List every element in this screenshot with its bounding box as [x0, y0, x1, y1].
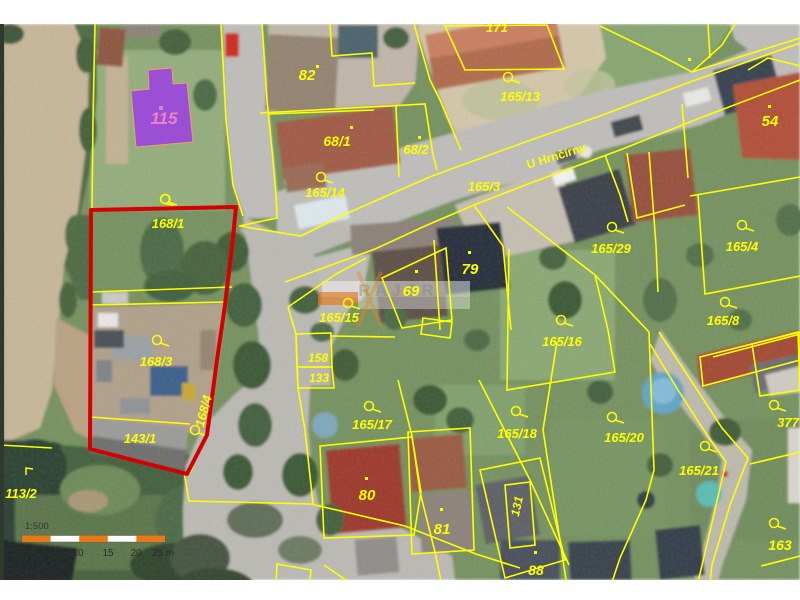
svg-text:79: 79: [462, 261, 479, 278]
svg-text:163: 163: [768, 537, 792, 553]
svg-text:165/4: 165/4: [726, 239, 759, 254]
svg-text:10: 10: [72, 548, 84, 559]
svg-text:115: 115: [150, 109, 178, 128]
svg-text:68/1: 68/1: [323, 133, 350, 149]
svg-text:165/29: 165/29: [591, 241, 632, 256]
svg-text:165/3: 165/3: [468, 179, 501, 194]
svg-text:377: 377: [777, 415, 799, 430]
svg-text:168/3: 168/3: [140, 354, 173, 369]
svg-text:113/2: 113/2: [5, 486, 37, 501]
svg-text:81: 81: [434, 521, 451, 538]
svg-text:165/13: 165/13: [500, 89, 541, 104]
svg-text:165/18: 165/18: [497, 426, 538, 441]
svg-text:69: 69: [403, 283, 420, 300]
svg-text:0: 0: [19, 548, 25, 559]
svg-text:165/17: 165/17: [352, 417, 393, 432]
svg-text:82: 82: [299, 67, 316, 84]
svg-text:15: 15: [102, 548, 114, 559]
svg-text:165/21: 165/21: [679, 463, 719, 478]
svg-text:165/14: 165/14: [305, 185, 346, 200]
svg-text:25 m: 25 m: [152, 548, 174, 559]
svg-text:20: 20: [130, 548, 142, 559]
svg-text:143/1: 143/1: [124, 431, 157, 446]
svg-text:68/2: 68/2: [403, 142, 429, 157]
svg-text:165/8: 165/8: [707, 313, 740, 328]
svg-text:165/15: 165/15: [319, 310, 360, 325]
svg-text:165/20: 165/20: [604, 430, 645, 445]
svg-text:88: 88: [528, 562, 544, 578]
svg-text:80: 80: [359, 487, 376, 504]
svg-text:5: 5: [47, 548, 53, 559]
svg-text:168/1: 168/1: [152, 216, 185, 231]
svg-text:1:500: 1:500: [25, 521, 49, 532]
svg-text:54: 54: [762, 113, 779, 130]
svg-text:133: 133: [309, 371, 329, 385]
svg-text:158: 158: [308, 351, 328, 365]
svg-text:165/16: 165/16: [542, 334, 583, 349]
